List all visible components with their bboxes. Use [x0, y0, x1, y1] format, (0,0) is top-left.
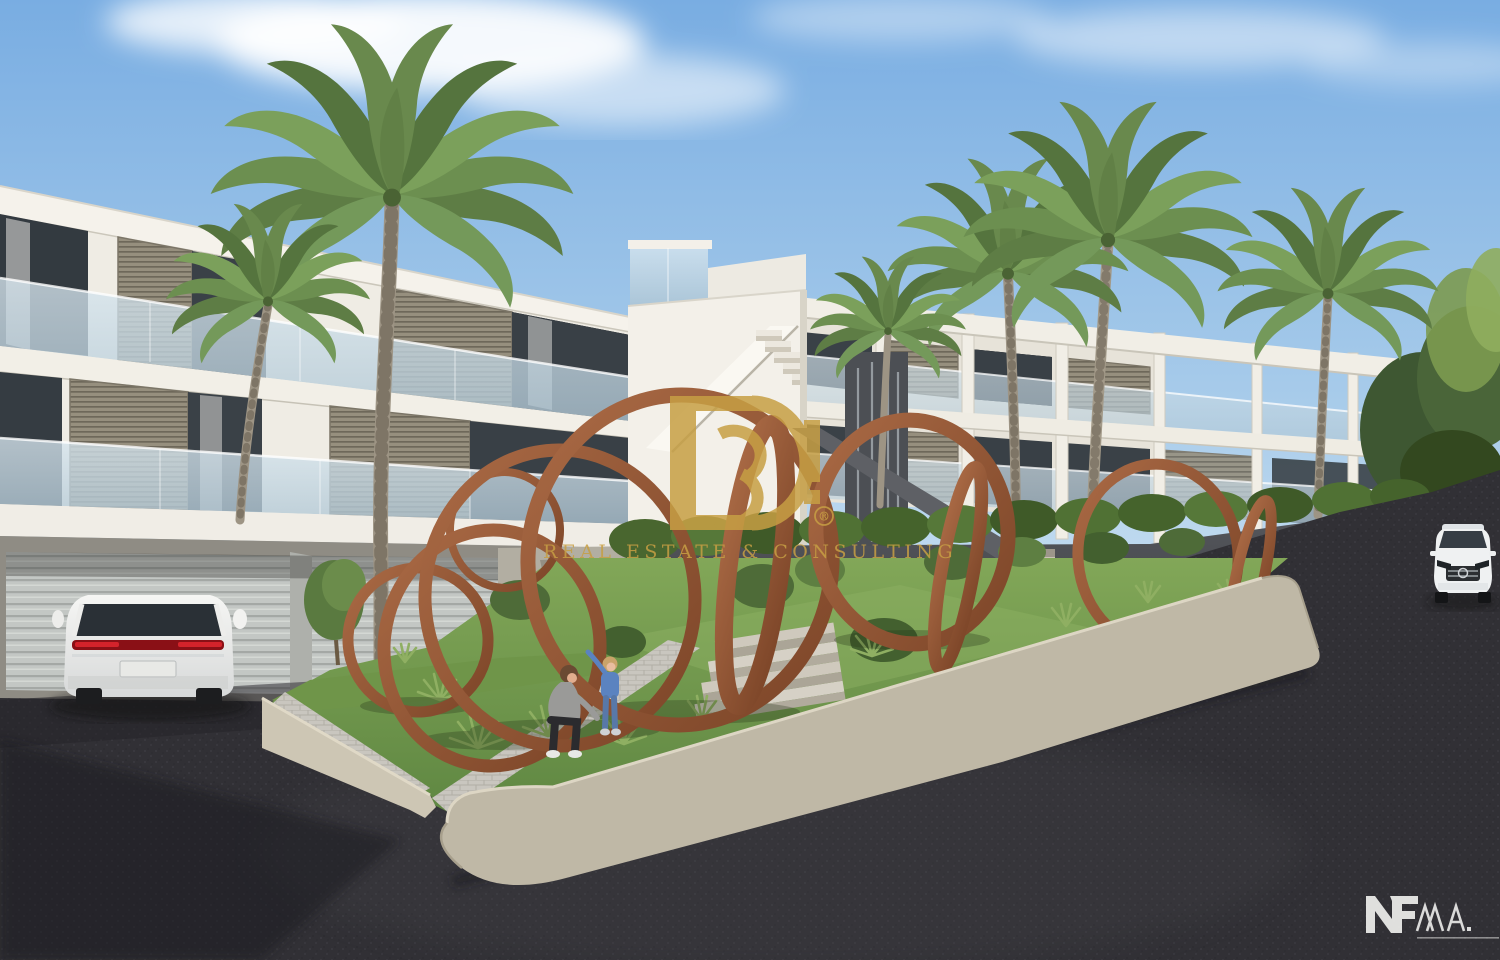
- suv-white: [50, 595, 250, 721]
- registered-symbol: ®: [818, 510, 830, 524]
- suv-rear-window: [74, 604, 224, 636]
- suv-mirror-right: [233, 609, 247, 629]
- monogram-bar: [804, 420, 820, 482]
- ma-logo-tagline: [1417, 937, 1499, 939]
- architectural-rendering: ® REAL ESTATE & CONSULTING: [0, 0, 1500, 960]
- sedan-white: [1427, 524, 1499, 610]
- sedan-windshield: [1439, 531, 1487, 548]
- child-jacket: [601, 672, 619, 698]
- ma-period: [1467, 927, 1471, 931]
- monogram-d-top: [670, 396, 758, 411]
- monogram-d-stem: [670, 396, 696, 530]
- monogram-bar-dot: [804, 490, 820, 504]
- watermark-tagline: REAL ESTATE & CONSULTING: [543, 541, 957, 563]
- suv-license-plate: [120, 661, 176, 677]
- suv-mirror-left: [52, 610, 64, 628]
